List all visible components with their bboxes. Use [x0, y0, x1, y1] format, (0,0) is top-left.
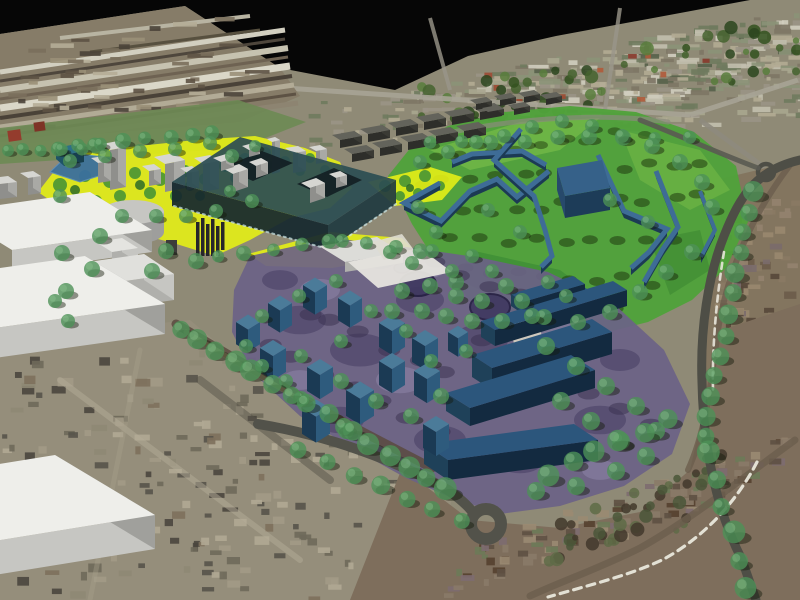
scene-root [0, 0, 800, 600]
masterplan-render [0, 0, 800, 600]
masterplan-svg [0, 0, 800, 600]
